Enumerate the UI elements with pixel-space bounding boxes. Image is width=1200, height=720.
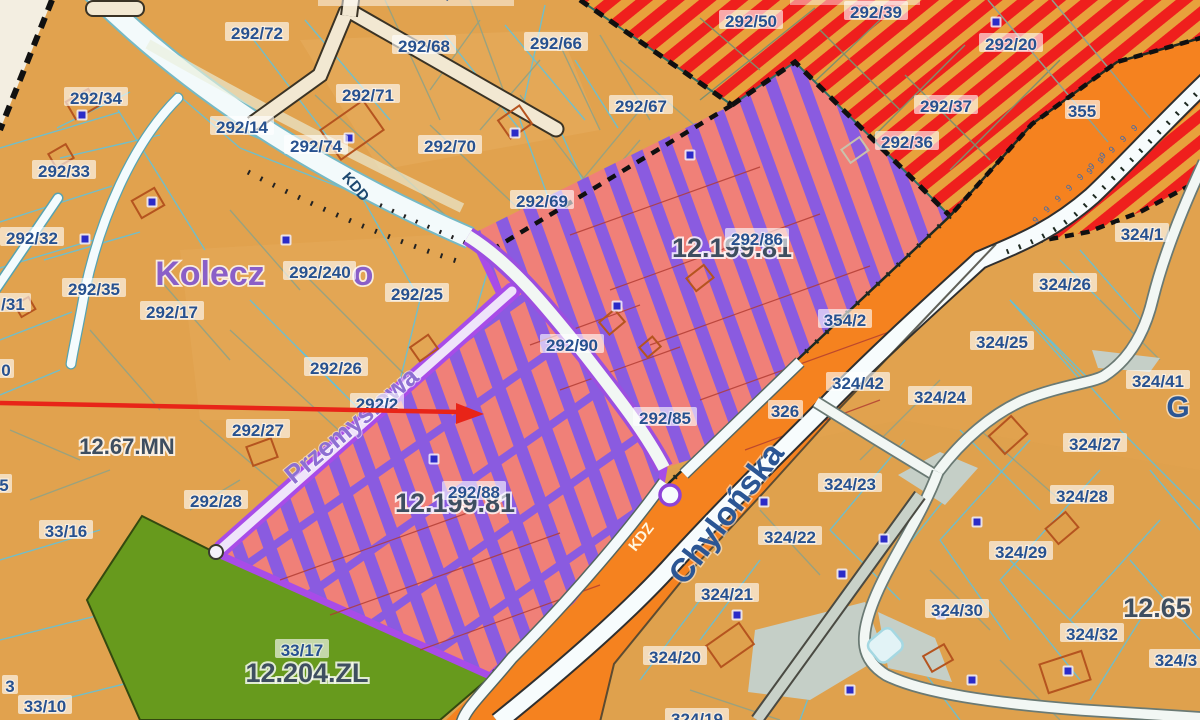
svg-text:292/39: 292/39 <box>850 3 902 22</box>
svg-text:324/22: 324/22 <box>764 528 816 547</box>
svg-text:292/17: 292/17 <box>146 303 198 322</box>
svg-text:324/1: 324/1 <box>1121 225 1164 244</box>
svg-text:292/74: 292/74 <box>290 137 343 156</box>
svg-text:292/66: 292/66 <box>530 34 582 53</box>
svg-text:292/240: 292/240 <box>289 263 350 282</box>
svg-text:324/29: 324/29 <box>995 543 1047 562</box>
svg-text:292/85: 292/85 <box>639 409 691 428</box>
svg-text:292/26: 292/26 <box>310 359 362 378</box>
svg-text:12.67.MN: 12.67.MN <box>79 434 174 459</box>
svg-text:292/25: 292/25 <box>391 285 443 304</box>
svg-text:324/41: 324/41 <box>1132 372 1184 391</box>
svg-text:324/20: 324/20 <box>649 648 701 667</box>
svg-text:324/19: 324/19 <box>671 710 723 720</box>
svg-text:292/21: 292/21 <box>827 0 882 1</box>
svg-text:324/42: 324/42 <box>832 374 884 393</box>
svg-text:292/70: 292/70 <box>424 137 476 156</box>
svg-text:/31: /31 <box>1 295 25 314</box>
svg-text:292/34: 292/34 <box>70 89 123 108</box>
svg-text:324/3: 324/3 <box>1155 651 1198 670</box>
svg-text:324/32: 324/32 <box>1066 625 1118 644</box>
svg-text:292/72: 292/72 <box>231 24 283 43</box>
svg-text:324/27: 324/27 <box>1069 435 1121 454</box>
svg-text:33/17: 33/17 <box>281 641 324 660</box>
svg-text:292/86: 292/86 <box>731 230 783 249</box>
svg-text:354/2: 354/2 <box>824 311 867 330</box>
svg-text:292/32: 292/32 <box>6 229 58 248</box>
svg-text:5: 5 <box>0 476 9 495</box>
svg-text:33/16: 33/16 <box>45 522 88 541</box>
svg-text:33/10: 33/10 <box>24 697 67 716</box>
svg-text:292/69: 292/69 <box>516 192 568 211</box>
svg-text:292/33: 292/33 <box>38 162 90 181</box>
svg-text:292/14: 292/14 <box>216 118 269 137</box>
svg-text:G: G <box>1166 391 1189 424</box>
svg-text:324/23: 324/23 <box>824 475 876 494</box>
svg-text:Kolecz: Kolecz <box>155 255 265 293</box>
svg-text:292/68: 292/68 <box>398 37 450 56</box>
svg-text:324/26: 324/26 <box>1039 275 1091 294</box>
svg-text:292/35: 292/35 <box>68 280 120 299</box>
svg-text:292/90: 292/90 <box>546 336 598 355</box>
svg-text:292/20: 292/20 <box>985 35 1037 54</box>
svg-text:292/36: 292/36 <box>881 133 933 152</box>
svg-text:292/88: 292/88 <box>448 483 500 502</box>
svg-text:324/25: 324/25 <box>976 333 1028 352</box>
svg-text:12.66.MN,U: 12.66.MN,U <box>367 0 463 2</box>
svg-text:292/37: 292/37 <box>920 97 972 116</box>
svg-text:3: 3 <box>5 677 14 696</box>
svg-text:292/67: 292/67 <box>615 97 667 116</box>
svg-text:324/30: 324/30 <box>931 601 983 620</box>
svg-text:12.65: 12.65 <box>1123 593 1191 623</box>
svg-text:292/71: 292/71 <box>342 86 394 105</box>
svg-text:292/50: 292/50 <box>725 12 777 31</box>
svg-text:292/28: 292/28 <box>190 492 242 511</box>
svg-text:324/24: 324/24 <box>914 388 967 407</box>
svg-text:292/27: 292/27 <box>232 421 284 440</box>
svg-text:355: 355 <box>1068 102 1096 121</box>
svg-text:326: 326 <box>771 402 799 421</box>
svg-text:324/28: 324/28 <box>1056 487 1108 506</box>
svg-text:324/21: 324/21 <box>701 585 753 604</box>
svg-text:12.204.ZL: 12.204.ZL <box>245 658 368 688</box>
svg-text:0: 0 <box>1 361 10 380</box>
